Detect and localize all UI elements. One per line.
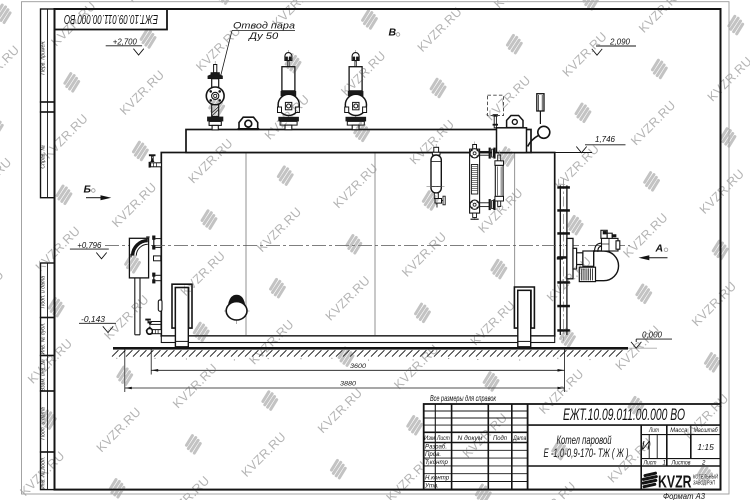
svg-text:Дата: Дата [512, 435, 526, 442]
svg-text:Б: Б [84, 184, 92, 196]
svg-text:ЕЖТ.10.09.011.00.000 ВО: ЕЖТ.10.09.011.00.000 ВО [563, 405, 685, 424]
svg-text:Н.контр: Н.контр [425, 475, 450, 482]
svg-text:2,090: 2,090 [609, 38, 631, 47]
svg-text:1:15: 1:15 [697, 442, 714, 452]
svg-text:KVZR: KVZR [658, 472, 692, 492]
svg-text:В: В [389, 27, 397, 39]
svg-text:+0,796: +0,796 [77, 241, 102, 250]
svg-text:Разраб.: Разраб. [425, 444, 447, 451]
svg-text:Подп: Подп [493, 435, 508, 442]
svg-text:А: А [655, 243, 664, 255]
svg-text:Листов: Листов [671, 460, 691, 467]
svg-text:1: 1 [663, 460, 666, 467]
svg-text:Перв. примен.: Перв. примен. [41, 40, 47, 74]
svg-text:Формат А3: Формат А3 [663, 492, 706, 500]
svg-text:Лит: Лит [648, 427, 659, 434]
svg-text:Ду 50: Ду 50 [248, 31, 278, 41]
svg-text:Изм: Изм [424, 435, 436, 442]
svg-text:Утв.: Утв. [424, 483, 439, 490]
svg-text:Лист: Лист [643, 460, 657, 467]
svg-text:Все размеры для справок: Все размеры для справок [430, 394, 497, 403]
svg-text:Подп. и дата: Подп. и дата [41, 276, 47, 309]
svg-text:Лист: Лист [436, 435, 450, 442]
svg-text:-0,143: -0,143 [81, 315, 106, 324]
svg-text:3600: 3600 [350, 363, 367, 370]
svg-text:Пров.: Пров. [425, 451, 441, 458]
svg-text:+2,700: +2,700 [113, 37, 138, 46]
svg-text:Инв. № дубл.: Инв. № дубл. [41, 323, 47, 355]
svg-text:1,746: 1,746 [595, 135, 616, 144]
